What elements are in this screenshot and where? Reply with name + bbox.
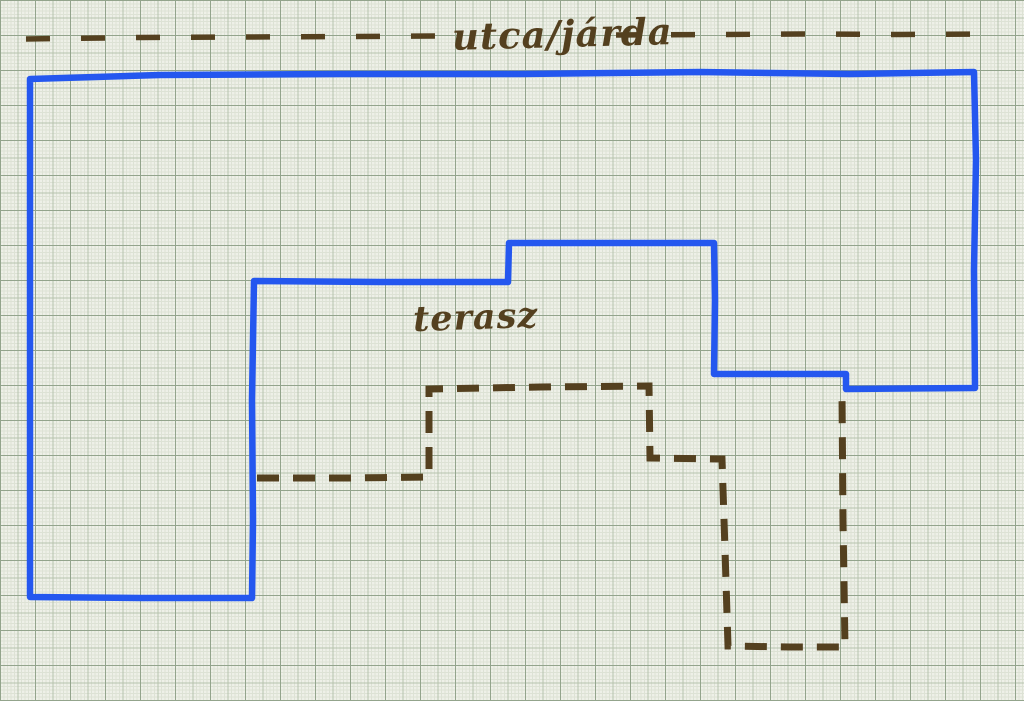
terrace-dashed-outline (257, 386, 845, 647)
terrace-label: terasz (412, 298, 538, 337)
site-sketch-drawing (0, 0, 1024, 701)
graph-paper-sheet: utca/járda terasz (0, 0, 1024, 701)
street-label: utca/járda (452, 13, 674, 56)
street-dashed-line-left (26, 36, 447, 39)
